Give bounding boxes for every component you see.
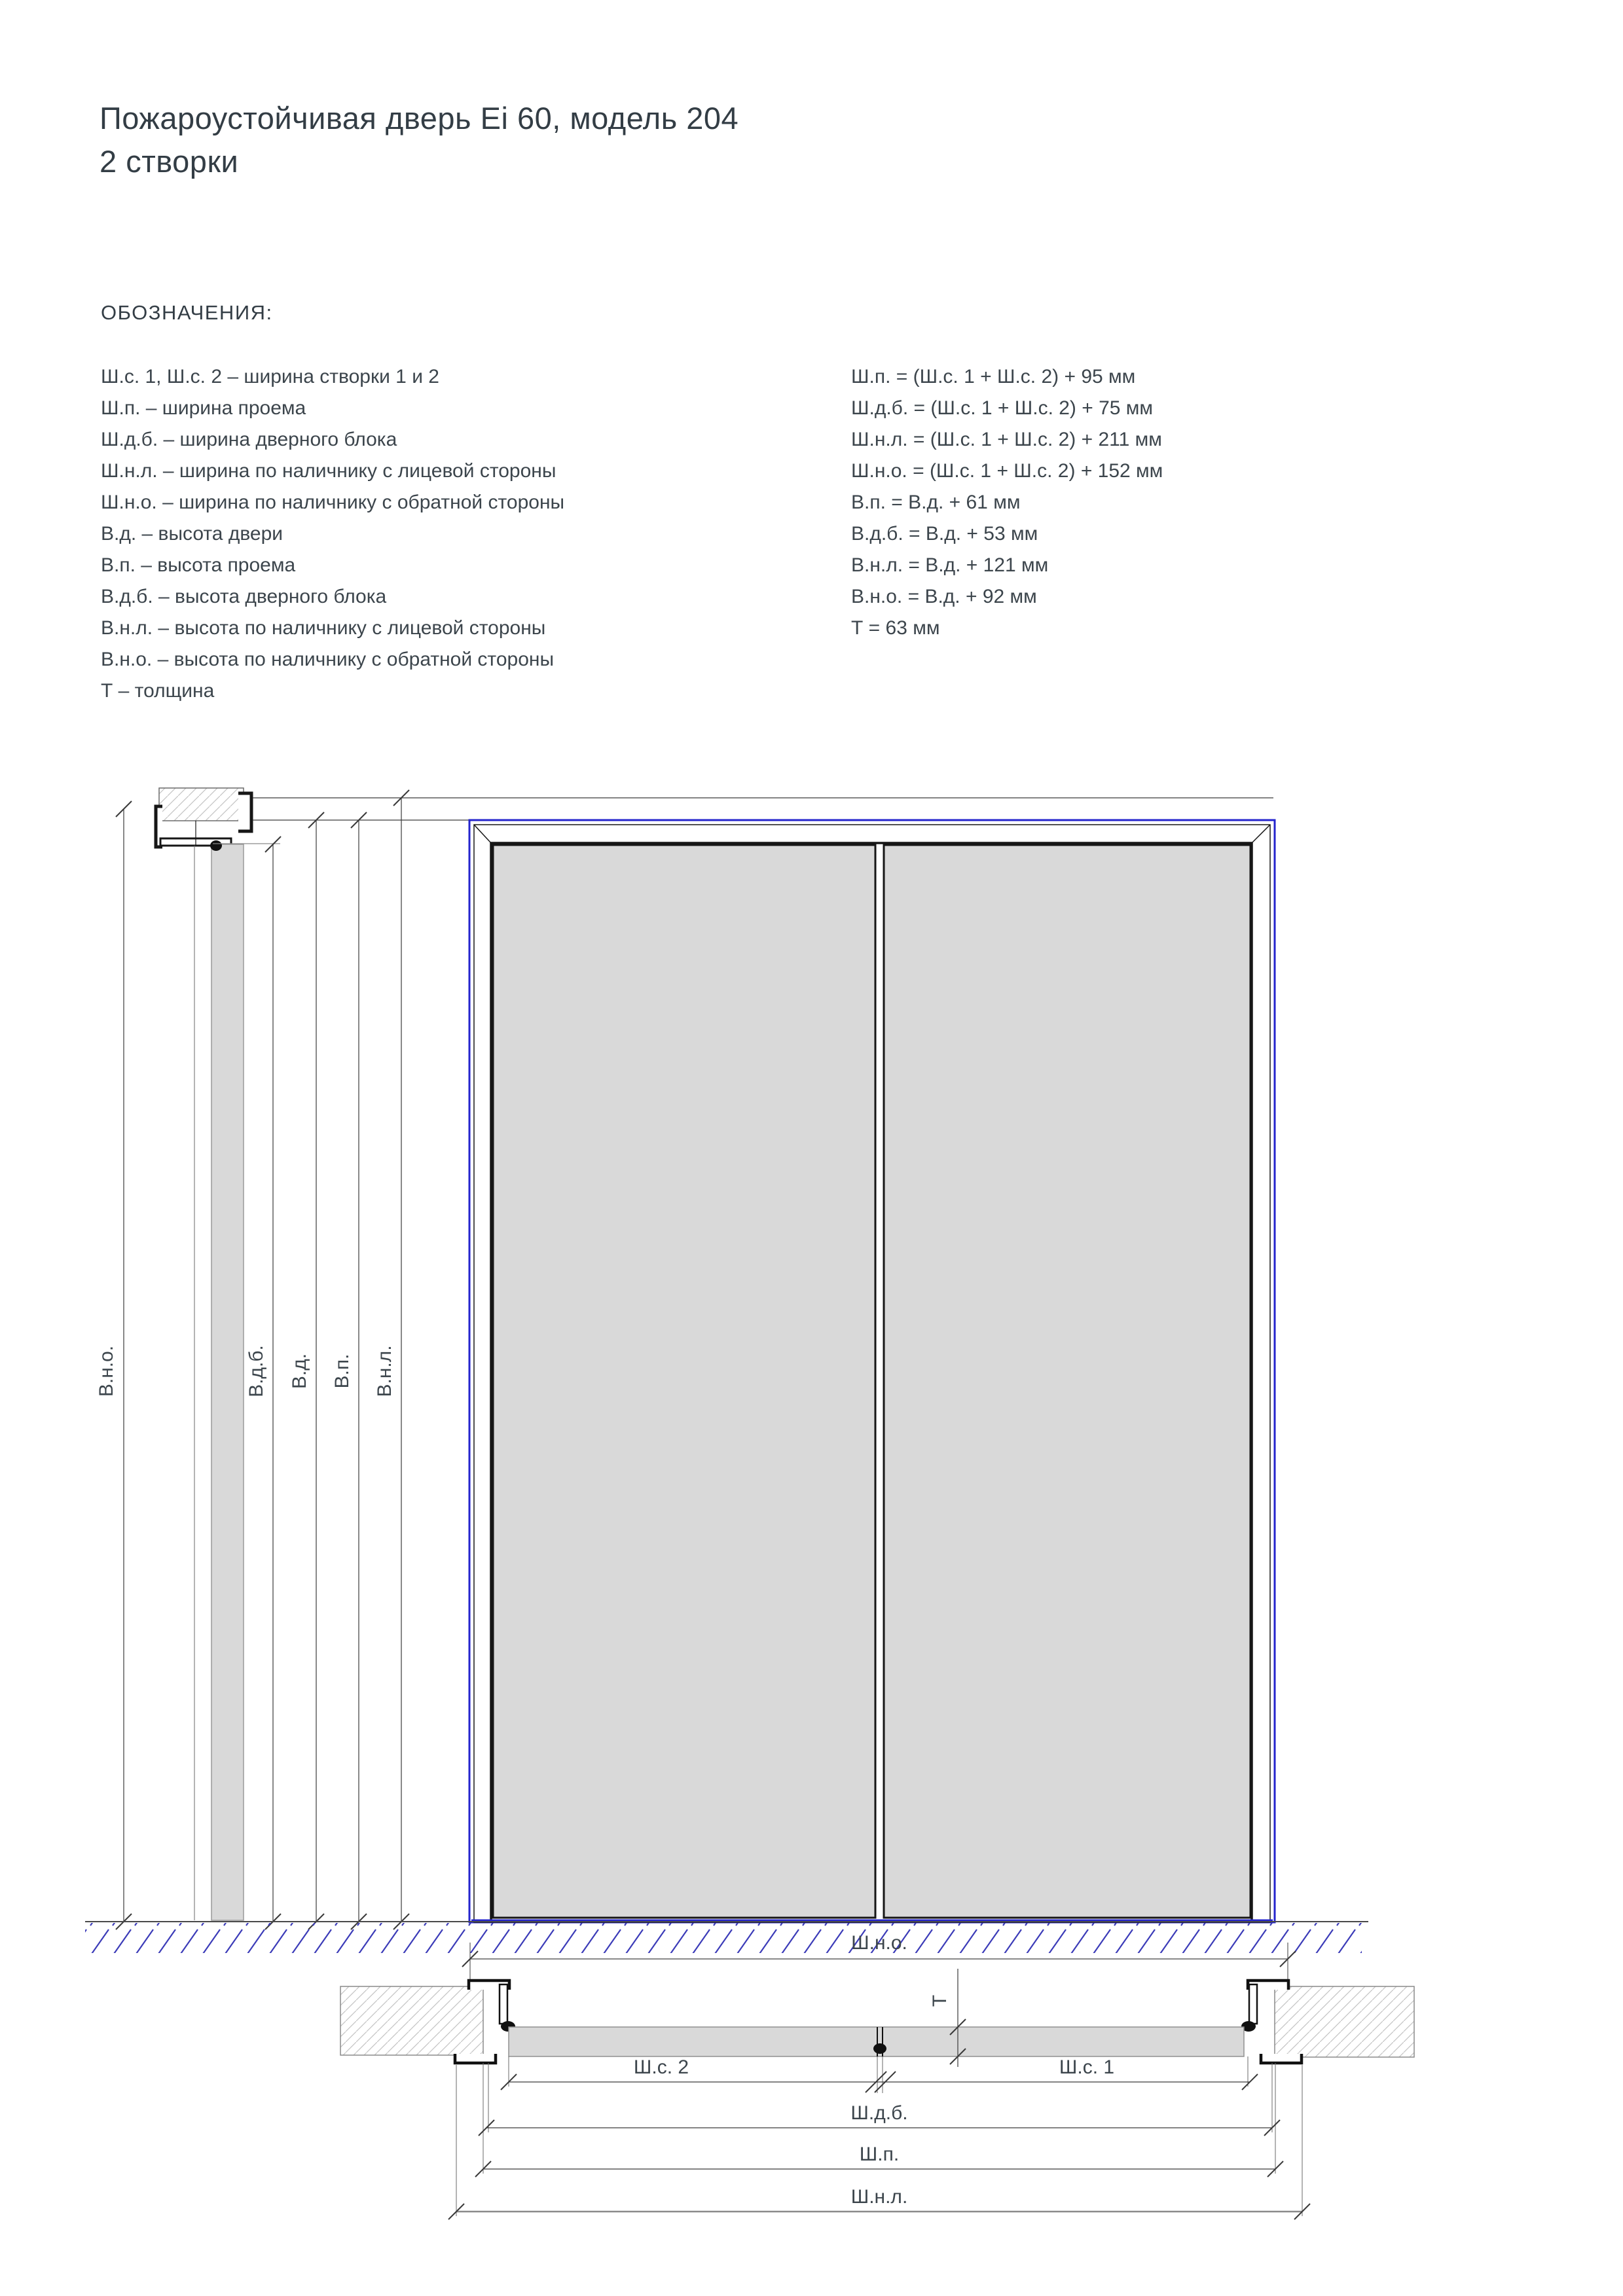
ground-hatch xyxy=(85,1923,1362,1953)
door-leaf-2 xyxy=(493,845,875,1918)
door-seal-dot xyxy=(210,840,222,851)
door-leaf-section xyxy=(211,844,244,1920)
wall-lintel-section xyxy=(159,788,244,821)
dim-label-vp: В.п. xyxy=(331,1354,353,1389)
dim-label-shdb: Ш.д.б. xyxy=(850,2102,907,2124)
wall-section-left xyxy=(340,1986,483,2055)
plan-section-view: Ш.н.о. xyxy=(340,1932,1414,2219)
frame-jamb-right xyxy=(1249,1984,1257,2024)
ground xyxy=(85,1922,1368,1953)
door-technical-drawing: В.н.о. В.д.б. В.д. В.п. В.н.л. xyxy=(0,0,1623,2296)
door-leaf-1 xyxy=(884,845,1250,1918)
front-architrave-right xyxy=(1261,2054,1302,2063)
front-architrave-profile xyxy=(238,793,251,831)
dim-label-shp: Ш.п. xyxy=(860,2144,899,2165)
dim-label-vnl: В.н.л. xyxy=(374,1345,395,1397)
front-architrave-left xyxy=(455,2054,496,2063)
meeting-seal-dot xyxy=(873,2043,886,2054)
dim-label-shno: Ш.н.о. xyxy=(851,1932,907,1954)
front-view xyxy=(469,820,1275,1922)
dim-label-t: Т xyxy=(929,1995,951,2007)
dim-label-shnl: Ш.н.л. xyxy=(851,2186,908,2208)
dim-label-shs1: Ш.с. 1 xyxy=(1059,2056,1114,2078)
dim-label-vdb: В.д.б. xyxy=(246,1345,267,1397)
dim-label-vd: В.д. xyxy=(289,1354,310,1389)
frame-jamb-left xyxy=(500,1984,507,2024)
dim-label-shs2: Ш.с. 2 xyxy=(634,2056,689,2078)
dim-label-vno: В.н.о. xyxy=(96,1346,117,1397)
wall-section-right xyxy=(1275,1986,1414,2057)
document-page: Пожароустойчивая дверь Ei 60, модель 204… xyxy=(0,0,1623,2296)
